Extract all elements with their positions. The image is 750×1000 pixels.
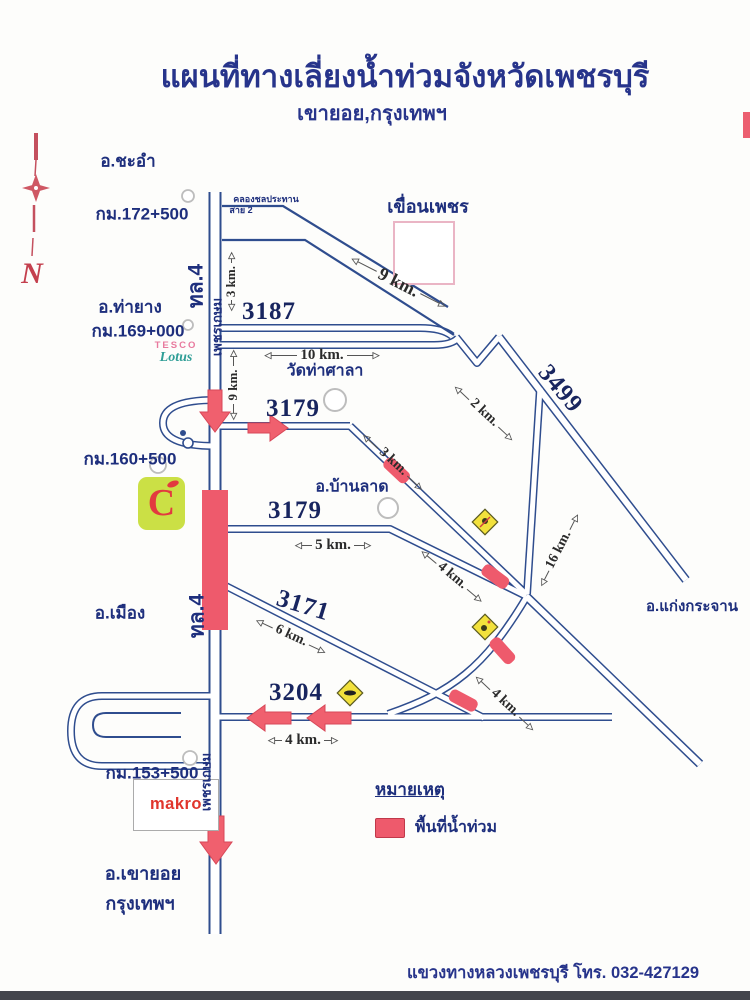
- map-graphics: [0, 0, 750, 1000]
- arrow-down-icon: [200, 816, 232, 864]
- warning-sign-icon: [472, 614, 497, 639]
- scan-edge-mark: [743, 112, 750, 138]
- road-casings: [71, 192, 700, 934]
- uturn-slot: [93, 713, 181, 737]
- road-surfaces: [71, 192, 700, 934]
- canal-line-south: [222, 240, 454, 335]
- warning-sign-icon: [472, 509, 497, 534]
- arrow-left-icon: [247, 705, 291, 731]
- compass-rose: [22, 133, 50, 256]
- flood-zone-highway4: [202, 490, 228, 630]
- arrow-right-icon: [248, 415, 288, 441]
- scan-bottom-edge: [0, 991, 750, 1000]
- arrow-left-icon: [307, 705, 351, 731]
- flood-detour-map-page: แผนที่ทางเลี่ยงน้ำท่วมจังหวัดเพชรบุรี เข…: [0, 0, 750, 1000]
- warning-sign-icon: [337, 680, 362, 705]
- canal-line-north: [222, 206, 448, 307]
